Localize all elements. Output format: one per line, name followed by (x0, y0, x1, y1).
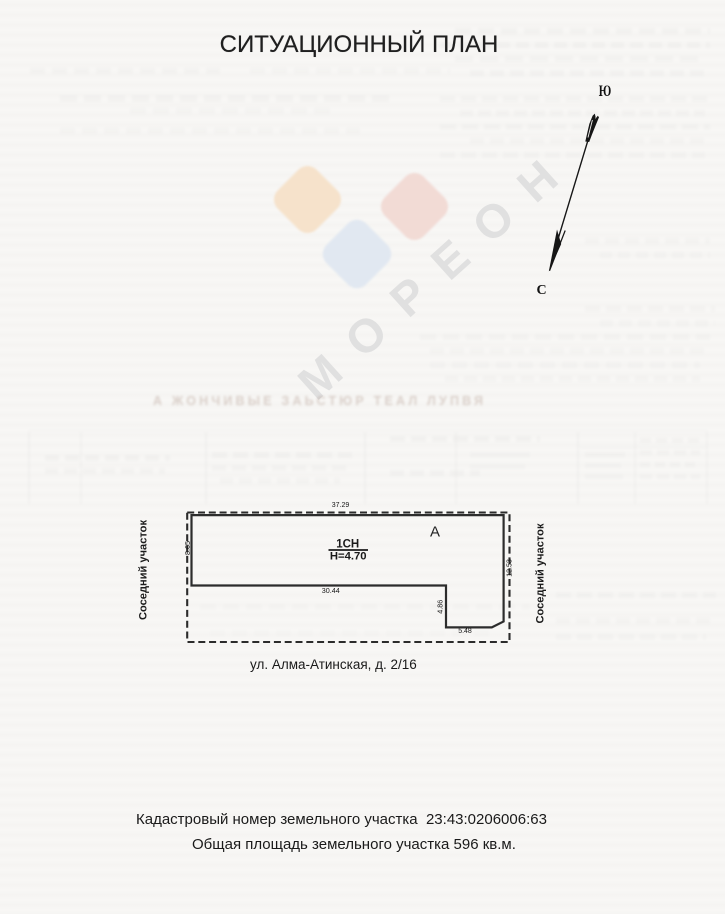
svg-text:37.29: 37.29 (332, 502, 350, 509)
svg-text:Соседний участок: Соседний участок (534, 523, 546, 623)
svg-text:8.65: 8.65 (183, 541, 192, 555)
svg-text:30.44: 30.44 (322, 586, 340, 595)
svg-text:4.86: 4.86 (436, 600, 445, 614)
svg-text:12.53: 12.53 (506, 559, 513, 577)
svg-text:5.48: 5.48 (458, 628, 472, 635)
svg-text:Соседний участок: Соседний участок (137, 520, 149, 620)
svg-text:1СН: 1СН (336, 539, 359, 551)
svg-text:Н=4.70: Н=4.70 (330, 550, 367, 562)
svg-text:А: А (430, 524, 440, 541)
